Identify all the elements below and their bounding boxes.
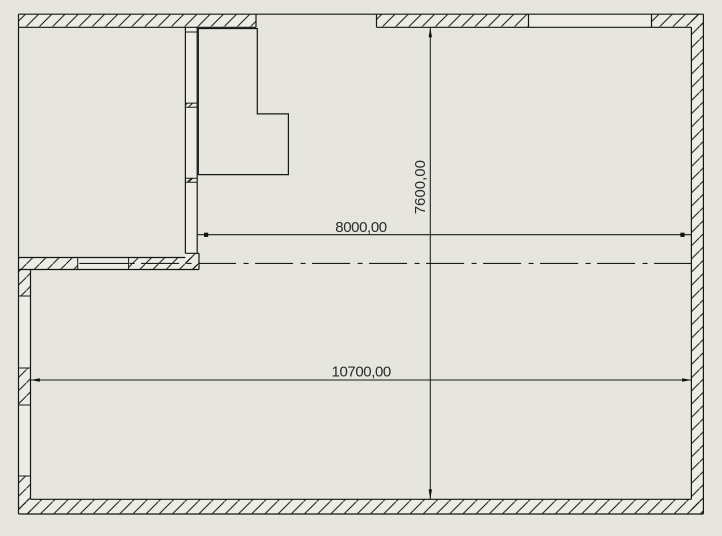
svg-text:10700,00: 10700,00: [332, 364, 391, 381]
svg-text:8000,00: 8000,00: [335, 219, 386, 236]
svg-text:7600,00: 7600,00: [412, 160, 429, 214]
